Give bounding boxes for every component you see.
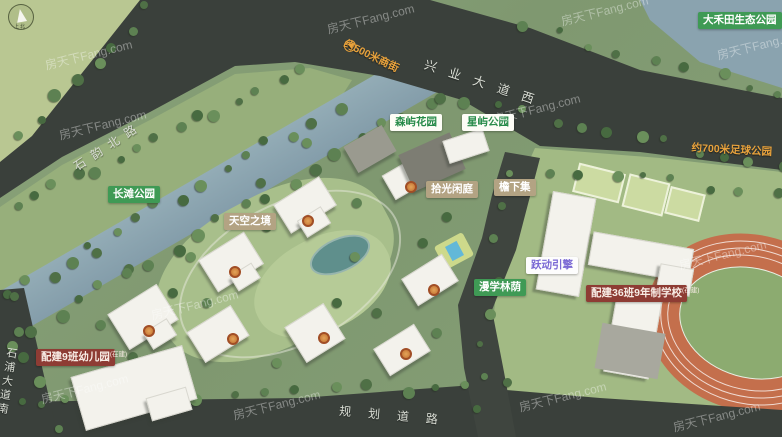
label-tiankong: 天空之境 xyxy=(224,213,276,230)
label-kindergarten: 配建9班幼儿园(在建) xyxy=(36,349,115,366)
north-arrow-triangle xyxy=(15,8,27,23)
label-xingyu-park: 星屿公园 xyxy=(462,114,514,131)
site-plan-map[interactable]: 石韵北路 兴业大道西 规划道路 石浦大道南 屏山河 长滩公园 大禾田生态公园 森… xyxy=(0,0,782,437)
label-school-suffix: (在建) xyxy=(682,287,699,295)
label-dahetian-park: 大禾田生态公园 xyxy=(698,12,782,29)
label-changtan-park: 长滩公园 xyxy=(108,186,160,203)
label-kindergarten-suffix: (在建) xyxy=(110,351,127,359)
label-manxue: 漫学林荫 xyxy=(474,279,526,296)
label-kindergarten-text: 配建9班幼儿园 xyxy=(41,351,110,363)
north-arrow-icon: 上北 xyxy=(8,4,34,30)
north-arrow-caption: 上北 xyxy=(14,23,26,30)
label-shiguang: 拾光闲庭 xyxy=(426,181,478,198)
label-school: 配建36班9年制学校(在建) xyxy=(586,285,687,302)
label-yanxia: 檐下集 xyxy=(494,179,536,196)
label-yuedong: 跃动引擎 xyxy=(526,257,578,274)
label-senyu-garden: 森屿花园 xyxy=(390,114,442,131)
label-school-text: 配建36班9年制学校 xyxy=(591,287,682,299)
